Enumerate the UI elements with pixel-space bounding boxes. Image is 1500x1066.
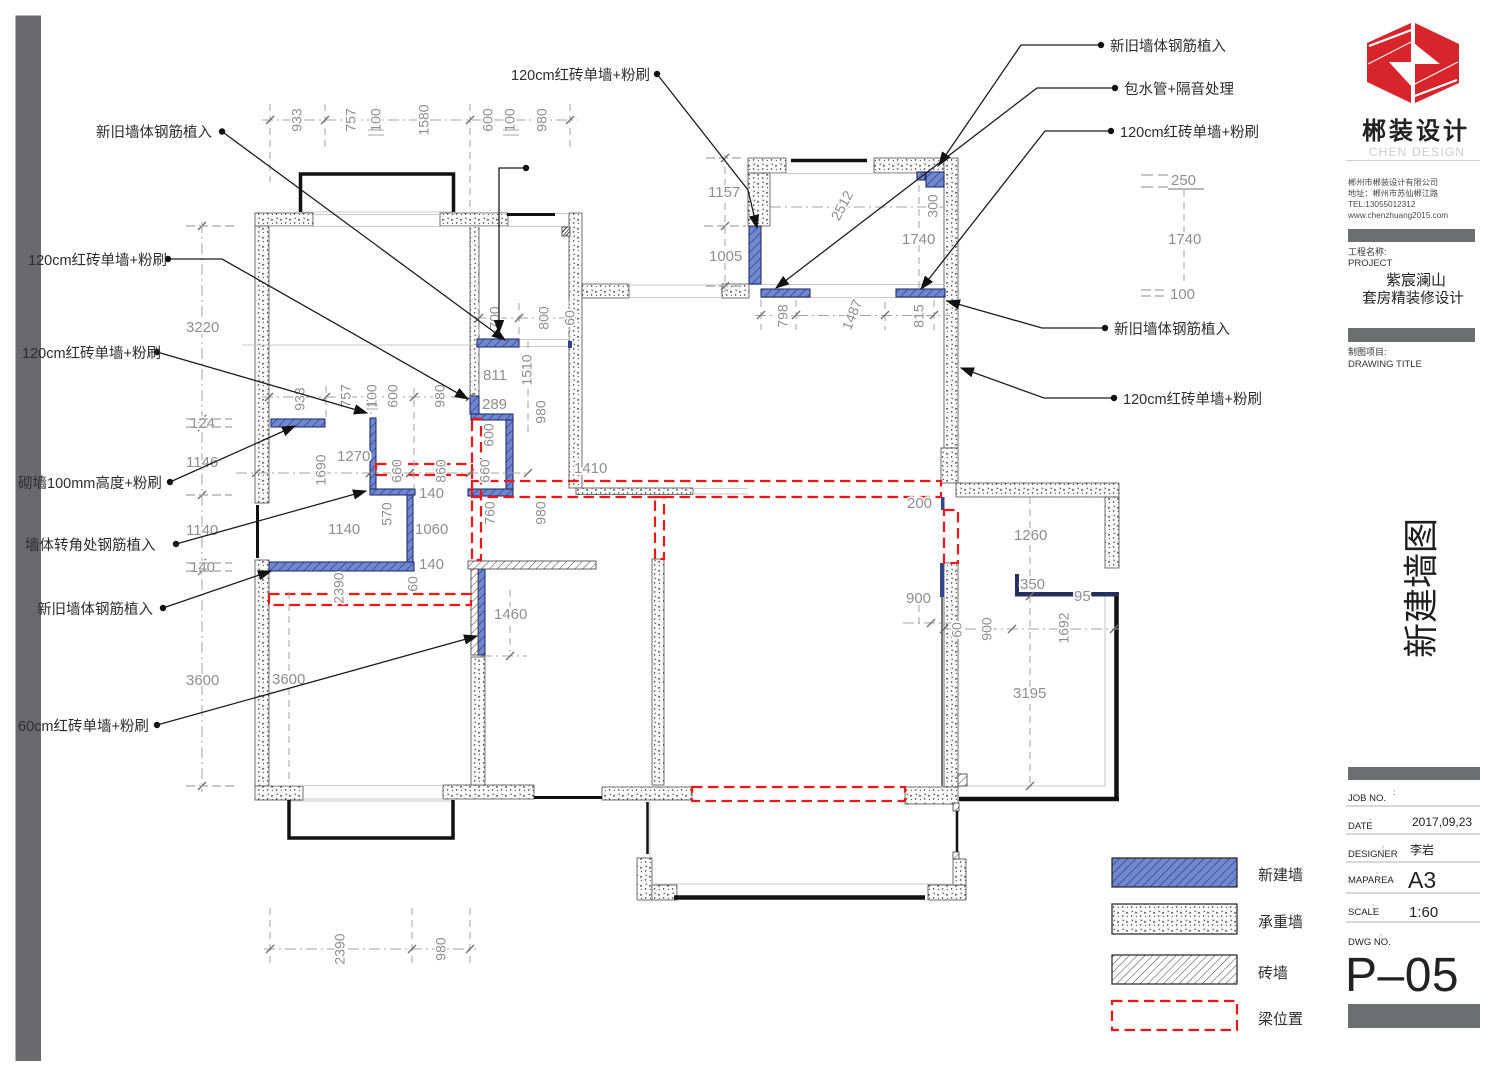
- svg-text:933: 933: [289, 108, 305, 132]
- svg-text:2390: 2390: [331, 572, 347, 603]
- svg-text:砖墙: 砖墙: [1258, 965, 1288, 982]
- svg-text:798: 798: [775, 304, 791, 328]
- svg-text:DRAWING TITLE: DRAWING TITLE: [1348, 359, 1422, 370]
- svg-text:757: 757: [338, 384, 354, 408]
- svg-text:2390: 2390: [332, 933, 348, 964]
- svg-text:工程名称:: 工程名称:: [1348, 246, 1387, 257]
- svg-text:120cm红砖单墙+粉刷: 120cm红砖单墙+粉刷: [511, 67, 650, 84]
- svg-text:3195: 3195: [1013, 685, 1046, 702]
- svg-text:承重墙: 承重墙: [1258, 914, 1303, 931]
- svg-text:DESIGNER: DESIGNER: [1348, 849, 1398, 860]
- svg-text:600: 600: [481, 423, 497, 447]
- svg-text:300: 300: [925, 194, 941, 218]
- svg-text:120cm红砖单墙+粉刷: 120cm红砖单墙+粉刷: [22, 345, 161, 362]
- svg-text:1060: 1060: [415, 521, 448, 538]
- svg-text:新旧墙体钢筋植入: 新旧墙体钢筋植入: [96, 124, 212, 141]
- svg-text:980: 980: [534, 108, 550, 132]
- svg-text:郴装设计: 郴装设计: [1362, 118, 1470, 145]
- svg-text:新旧墙体钢筋植入: 新旧墙体钢筋植入: [1114, 321, 1230, 338]
- svg-text:1410: 1410: [574, 460, 607, 477]
- svg-text::: :: [1382, 844, 1384, 853]
- svg-text:套房精装修设计: 套房精装修设计: [1362, 290, 1464, 307]
- svg-text:250: 250: [1171, 172, 1196, 189]
- svg-text:140: 140: [190, 559, 215, 576]
- svg-text:60: 60: [562, 310, 578, 326]
- svg-text:2017,09,23: 2017,09,23: [1412, 815, 1472, 829]
- svg-text:1270: 1270: [337, 448, 370, 465]
- svg-text:700: 700: [487, 306, 503, 330]
- svg-text:1260: 1260: [1014, 527, 1047, 544]
- svg-text:60: 60: [405, 576, 421, 592]
- svg-text:757: 757: [343, 108, 359, 132]
- svg-text:地址：郴州市苏仙郴江路: 地址：郴州市苏仙郴江路: [1348, 188, 1438, 198]
- svg-text:95: 95: [1074, 588, 1091, 605]
- svg-text:1510: 1510: [519, 354, 535, 385]
- svg-text:100: 100: [1170, 286, 1195, 303]
- svg-text:1740: 1740: [1168, 231, 1201, 248]
- svg-text:www.chenzhuang2015.com: www.chenzhuang2015.com: [1347, 211, 1448, 220]
- svg-text:JOB NO.: JOB NO.: [1348, 793, 1386, 804]
- svg-text:140: 140: [419, 485, 444, 502]
- svg-text:100: 100: [364, 384, 380, 408]
- svg-text:1140: 1140: [328, 521, 360, 538]
- svg-text:李岩: 李岩: [1410, 842, 1434, 857]
- svg-text:980: 980: [533, 400, 549, 424]
- svg-text:760: 760: [482, 501, 498, 525]
- svg-text:1690: 1690: [313, 454, 329, 485]
- svg-text:120cm红砖单墙+粉刷: 120cm红砖单墙+粉刷: [28, 252, 167, 269]
- svg-text:3220: 3220: [186, 319, 219, 336]
- svg-text:制图项目:: 制图项目:: [1348, 346, 1387, 357]
- svg-text:SCALE: SCALE: [1348, 907, 1379, 918]
- svg-text:1:60: 1:60: [1409, 904, 1438, 921]
- svg-text:砌墙100mm高度+粉刷: 砌墙100mm高度+粉刷: [18, 475, 162, 492]
- svg-text:120cm红砖单墙+粉刷: 120cm红砖单墙+粉刷: [1123, 391, 1262, 408]
- svg-text:660: 660: [389, 459, 405, 483]
- svg-text:660: 660: [477, 459, 493, 483]
- svg-text:200: 200: [907, 495, 932, 512]
- svg-text:1692: 1692: [1056, 612, 1072, 643]
- svg-text:980: 980: [533, 501, 549, 525]
- svg-text:包水管+隔音处理: 包水管+隔音处理: [1124, 81, 1234, 98]
- svg-text:DWG NO.: DWG NO.: [1348, 937, 1391, 948]
- svg-text:CHEN DESIGN: CHEN DESIGN: [1369, 145, 1466, 159]
- svg-text:墙体转角处钢筋植入: 墙体转角处钢筋植入: [25, 537, 156, 554]
- svg-text:紫宸澜山: 紫宸澜山: [1386, 272, 1446, 289]
- svg-text:100: 100: [502, 108, 518, 132]
- svg-text:600: 600: [385, 384, 401, 408]
- svg-text:新旧墙体钢筋植入: 新旧墙体钢筋植入: [1110, 38, 1226, 55]
- svg-text:P–05: P–05: [1345, 949, 1459, 1002]
- svg-text:900: 900: [979, 617, 995, 641]
- svg-text::: :: [1372, 902, 1374, 911]
- svg-text:TEL:13055012312: TEL:13055012312: [1348, 200, 1416, 209]
- svg-text:新建墙: 新建墙: [1258, 867, 1303, 884]
- svg-text:3600: 3600: [186, 672, 219, 689]
- svg-text:60cm红砖单墙+粉刷: 60cm红砖单墙+粉刷: [18, 718, 149, 735]
- svg-text:980: 980: [432, 384, 448, 408]
- svg-text:600: 600: [480, 108, 496, 132]
- svg-text::: :: [1393, 788, 1395, 797]
- svg-text:新建墙图: 新建墙图: [1402, 518, 1441, 658]
- svg-text:新旧墙体钢筋植入: 新旧墙体钢筋植入: [37, 601, 153, 618]
- svg-text:MAPAREA: MAPAREA: [1348, 875, 1394, 886]
- svg-text:860: 860: [433, 459, 449, 483]
- svg-text:933: 933: [292, 387, 308, 411]
- svg-text:570: 570: [379, 502, 395, 526]
- svg-text:120cm红砖单墙+粉刷: 120cm红砖单墙+粉刷: [1120, 124, 1259, 141]
- svg-text::: :: [1376, 870, 1378, 879]
- svg-text::: :: [1369, 816, 1371, 825]
- svg-text:900: 900: [906, 590, 931, 607]
- svg-text:800: 800: [536, 306, 552, 330]
- svg-text:1580: 1580: [416, 104, 432, 135]
- svg-text:100: 100: [368, 108, 384, 132]
- svg-text:1740: 1740: [902, 231, 935, 248]
- svg-text:289: 289: [482, 396, 507, 413]
- svg-text:1460: 1460: [494, 606, 527, 623]
- svg-text:梁位置: 梁位置: [1258, 1011, 1303, 1028]
- svg-text:140: 140: [419, 556, 444, 573]
- svg-text:A3: A3: [1408, 867, 1436, 893]
- svg-text:郴州市郴装设计有限公司: 郴州市郴装设计有限公司: [1348, 177, 1438, 187]
- svg-text:350: 350: [1020, 576, 1045, 593]
- svg-text:980: 980: [433, 937, 449, 961]
- svg-text:811: 811: [483, 367, 507, 384]
- svg-text:1005: 1005: [709, 248, 742, 265]
- svg-text:PROJECT: PROJECT: [1348, 258, 1393, 269]
- svg-text:815: 815: [911, 304, 927, 328]
- svg-text:124: 124: [190, 415, 215, 432]
- svg-text:1157: 1157: [708, 184, 740, 201]
- svg-text:60: 60: [949, 622, 965, 638]
- svg-text::: :: [1380, 932, 1382, 941]
